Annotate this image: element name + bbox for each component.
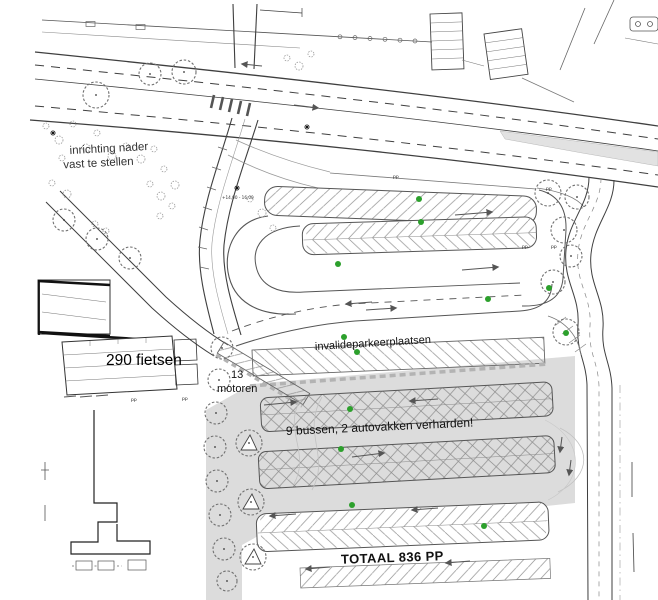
- crosswalk-stripes: [211, 95, 250, 116]
- tree-symbol: [83, 82, 109, 108]
- plan-linework: +14,00 - 16,00 pp pp pp pp pp pp: [0, 0, 658, 600]
- planting-dot: [546, 285, 552, 291]
- planting-dot: [416, 196, 422, 202]
- tree-symbol: [535, 180, 561, 206]
- pp-marker: pp: [182, 397, 188, 402]
- tree-symbol: [86, 228, 108, 250]
- planting-dot: [335, 261, 341, 267]
- planting-dot: [349, 502, 355, 508]
- tree-symbol: [551, 217, 577, 243]
- label-inrichting: inrichting nader vast te stellen: [69, 141, 149, 173]
- pp-marker: pp: [546, 187, 552, 192]
- planting-dot: [418, 219, 424, 225]
- planting-dot: [485, 296, 491, 302]
- pp-marker: pp: [131, 398, 137, 403]
- planting-dot: [563, 330, 569, 336]
- pp-marker: pp: [393, 175, 399, 180]
- fence-posts: [86, 22, 417, 44]
- pp-marker: pp: [551, 245, 557, 250]
- planting-dot: [481, 523, 487, 529]
- tree-symbol: [541, 270, 565, 294]
- elevation-note: +14,00 - 16,00: [222, 195, 254, 200]
- label-motorcycle-count: 13: [231, 369, 243, 382]
- tree-symbol-triangle: [240, 544, 266, 570]
- tree-symbol: [139, 63, 161, 85]
- label-motorcycle-word: motoren: [217, 383, 257, 396]
- tree-symbol: [119, 247, 141, 269]
- pp-marker: pp: [522, 245, 528, 250]
- label-bike-count: 290 fietsen: [106, 352, 182, 371]
- site-plan-drawing: +14,00 - 16,00 pp pp pp pp pp pp inricht…: [0, 0, 658, 600]
- planting-dot: [347, 406, 353, 412]
- planting-dot: [338, 446, 344, 452]
